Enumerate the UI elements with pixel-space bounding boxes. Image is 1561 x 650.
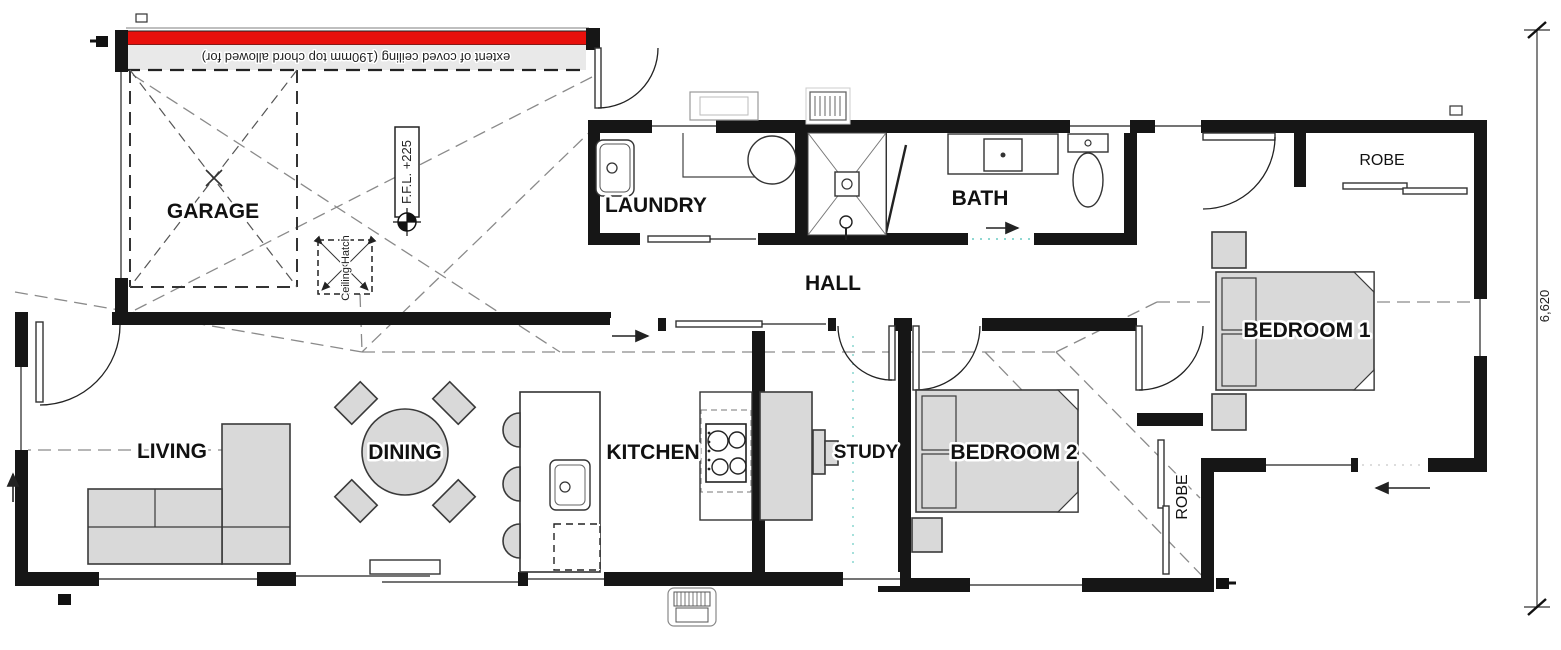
bedside-table: [912, 518, 942, 552]
dishwasher-dashed: [554, 524, 600, 570]
coved-ceiling-note: extent of coved ceiling (190mm top chord…: [202, 50, 511, 65]
label-garage: GARAGE: [167, 200, 259, 223]
ceiling-hatch-label: Ceiling Hatch: [340, 235, 352, 300]
stool: [503, 413, 520, 447]
furniture: [88, 232, 1374, 574]
stool: [503, 524, 520, 558]
downpipe: [1216, 578, 1229, 589]
ffl-label: F.F.L. +225: [399, 140, 414, 204]
garage-door-red-strip: [126, 31, 589, 45]
bedside-table: [1212, 232, 1246, 268]
shower: [808, 133, 886, 240]
fixtures: [596, 133, 1108, 240]
label-robe1: ROBE: [1359, 152, 1404, 169]
label-bedroom1: BEDROOM 1: [1243, 319, 1371, 342]
label-robe2: ROBE: [1174, 474, 1191, 519]
label-study: STUDY: [834, 442, 899, 463]
label-bedroom2: BEDROOM 2: [950, 441, 1077, 464]
external-ac-unit: [668, 588, 716, 626]
study-desk: [760, 392, 838, 520]
roof-bracket: [1450, 106, 1462, 115]
floor-plan: extent of coved ceiling (190mm top chord…: [0, 0, 1561, 650]
stool: [503, 467, 520, 501]
garage-setout: [130, 70, 297, 287]
bed-2: [912, 390, 1078, 552]
label-laundry: LAUNDRY: [605, 194, 707, 217]
roof-bracket: [136, 14, 147, 22]
toilet: [1068, 134, 1108, 207]
ceiling-hatch: Ceiling Hatch: [318, 235, 372, 300]
bath-vanity: [948, 134, 1058, 174]
label-living: LIVING: [137, 440, 207, 463]
downpipe: [96, 36, 108, 47]
washing-machine: [748, 136, 796, 184]
label-kitchen: KITCHEN: [606, 441, 699, 464]
dimension-6620: 6,620: [1537, 290, 1552, 323]
label-bath: BATH: [952, 187, 1009, 210]
label-dining: DINING: [368, 441, 442, 464]
cooktop-bench: [700, 392, 752, 520]
garage-door-and-band: extent of coved ceiling (190mm top chord…: [126, 28, 589, 70]
doors: [36, 48, 1275, 405]
laundry-tub: [596, 140, 634, 196]
dimension-line: 6,620: [1524, 22, 1552, 615]
kitchen-island: [503, 392, 600, 572]
laundry-bench: [683, 133, 757, 177]
meter-box: [806, 88, 850, 124]
floor-plan-drawing: extent of coved ceiling (190mm top chord…: [0, 0, 1561, 650]
bedside-table: [1212, 394, 1246, 430]
door-mat: [370, 560, 440, 574]
downpipe: [58, 594, 71, 605]
label-hall: HALL: [805, 272, 861, 295]
ffl-marker: F.F.L. +225: [393, 127, 421, 236]
